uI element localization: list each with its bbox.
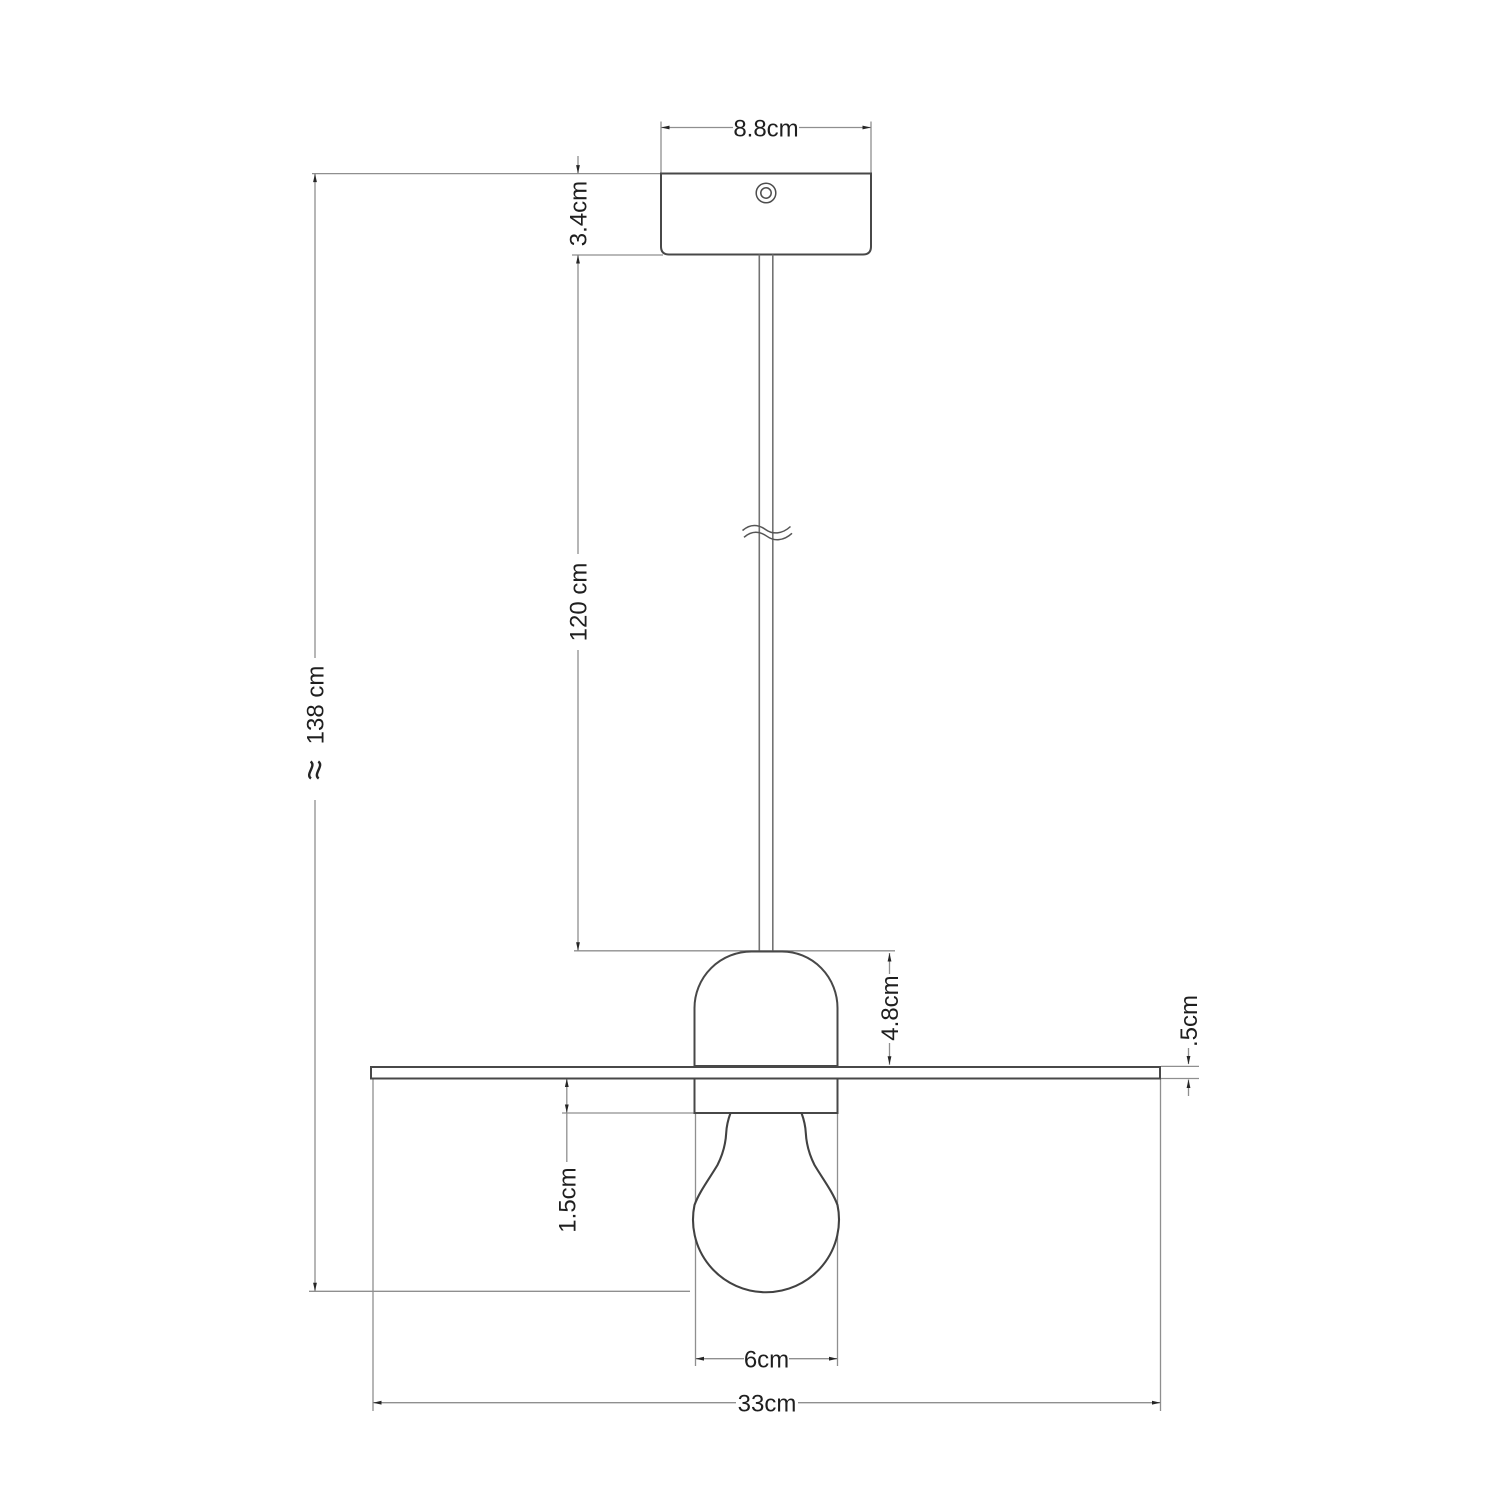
svg-text:8.8cm: 8.8cm bbox=[733, 116, 798, 143]
svg-text:120 cm: 120 cm bbox=[566, 563, 593, 642]
svg-text:138 cm: 138 cm bbox=[303, 666, 330, 745]
svg-text:6cm: 6cm bbox=[744, 1346, 789, 1373]
svg-text:1.5cm: 1.5cm bbox=[554, 1167, 581, 1232]
svg-text:33cm: 33cm bbox=[738, 1390, 797, 1417]
svg-text:4.8cm: 4.8cm bbox=[877, 975, 904, 1040]
svg-text:3.4cm: 3.4cm bbox=[566, 181, 593, 246]
svg-text:.5cm: .5cm bbox=[1176, 995, 1203, 1047]
